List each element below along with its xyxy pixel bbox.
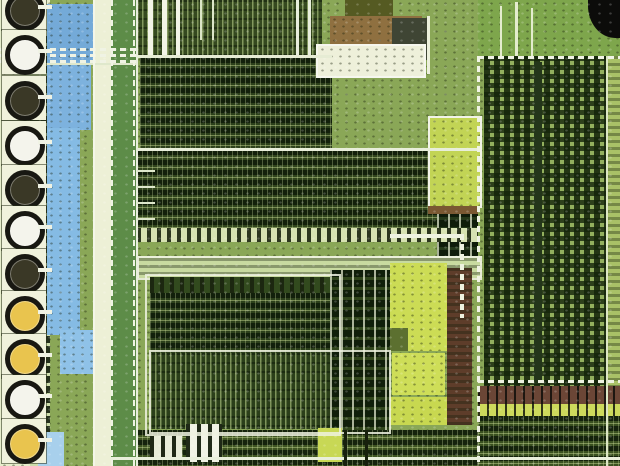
bond-pad-trace — [38, 184, 52, 188]
bond-pad-trace — [38, 5, 52, 9]
photo-grain — [0, 0, 620, 466]
bond-pad-ring — [5, 126, 45, 166]
bond-pad-1 — [2, 0, 46, 30]
bond-pad-trace — [38, 353, 52, 357]
bond-pad-6 — [2, 206, 46, 250]
bond-pad-trace — [38, 438, 52, 442]
bond-pad-3 — [2, 76, 46, 120]
bond-pad-ring — [5, 424, 45, 464]
bond-pad-trace — [38, 140, 52, 144]
bond-pad-5 — [2, 165, 46, 209]
bond-pad-7 — [2, 249, 46, 293]
bond-pad-trace — [38, 49, 52, 53]
bond-pad-ring — [5, 339, 45, 379]
bond-pad-ring — [5, 35, 45, 75]
bond-pad-trace — [38, 268, 52, 272]
bond-pad-9 — [2, 334, 46, 378]
bond-pad-ring — [5, 380, 45, 420]
bond-pad-10 — [2, 375, 46, 419]
bond-pad-4 — [2, 121, 46, 165]
bond-pad-ring — [5, 81, 45, 121]
bond-pad-trace — [38, 95, 52, 99]
bond-pad-2 — [2, 30, 46, 74]
bond-pad-ring — [5, 254, 45, 294]
bond-pad-ring — [5, 211, 45, 251]
bond-pad-11 — [2, 419, 46, 463]
bond-pad-trace — [38, 225, 52, 229]
bond-pad-trace — [38, 394, 52, 398]
bond-pad-ring — [5, 296, 45, 336]
bond-pad-trace — [38, 310, 52, 314]
bond-pad-ring — [5, 170, 45, 210]
bond-pad-8 — [2, 291, 46, 335]
ic-die-photomicrograph — [0, 0, 620, 466]
